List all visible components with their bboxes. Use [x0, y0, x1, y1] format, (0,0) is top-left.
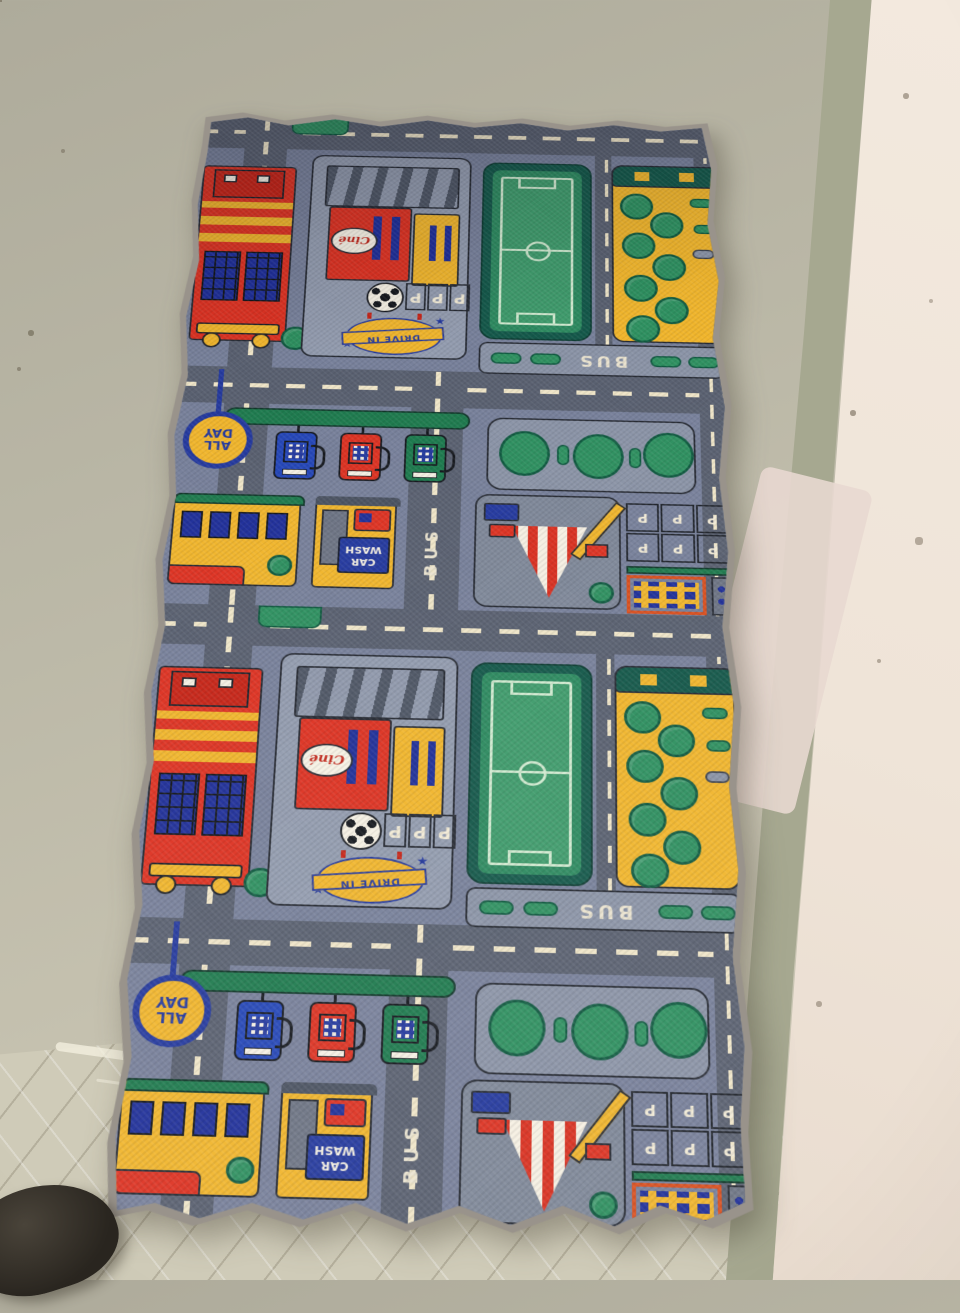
bus-lane-label: BUS [576, 352, 628, 370]
photo-scene: { "scene": { "description": "Children's … [0, 0, 960, 1280]
bush-icon [479, 900, 514, 915]
goal-box [510, 680, 553, 695]
sign-post [367, 313, 372, 319]
truck-icon [489, 524, 516, 538]
tram-window [180, 511, 204, 538]
bus-bay: BUS [478, 342, 725, 379]
fuel-pump-red [307, 1002, 357, 1064]
tree-icon [622, 232, 656, 259]
cinema-sign: Ciné [300, 743, 354, 777]
fire-station-roof [169, 671, 251, 708]
goal-box [518, 177, 556, 189]
parking-cell: P [661, 534, 695, 563]
fire-station-roof [212, 169, 285, 199]
car-wash-sign: CAR WASH [337, 537, 391, 574]
tree-icon [488, 999, 546, 1057]
dirt-specks [0, 0, 2, 2]
traffic-island [474, 982, 711, 1080]
truck-icon [484, 503, 520, 522]
parking-cell: P [696, 505, 730, 534]
pump-base [282, 469, 307, 475]
cinema-wing [390, 726, 446, 818]
construction-site [458, 1079, 626, 1227]
pump-panel [391, 1015, 420, 1043]
bench-icon [705, 771, 730, 783]
tram-building [167, 493, 302, 587]
park [614, 665, 740, 890]
car-wash-building: CAR WASH [311, 496, 398, 589]
parking-cell: P [670, 1092, 708, 1129]
bush-icon [658, 905, 693, 920]
truck-icon [476, 1117, 506, 1135]
factory-building [626, 566, 732, 616]
cinema-sign: Ciné [330, 227, 378, 254]
bush-icon [689, 199, 712, 209]
tree-icon [589, 1191, 618, 1219]
bush-icon [553, 1017, 567, 1043]
crane-cab [585, 1143, 611, 1161]
tree-icon [650, 212, 684, 239]
bush-icon [530, 353, 561, 365]
pump-base [347, 470, 372, 476]
pump-panel [283, 441, 309, 463]
tram-window [224, 1103, 250, 1138]
tram-window [237, 512, 260, 539]
tram-skirt [112, 1169, 201, 1197]
tram-window [208, 511, 231, 538]
fire-station-building [188, 165, 297, 342]
car-icon [323, 1098, 366, 1127]
tree-icon [573, 434, 624, 480]
fire-station-window [201, 774, 247, 837]
soccer-field [466, 662, 593, 887]
truck-icon [471, 1091, 511, 1115]
parking-lot: P P P P P P [626, 503, 731, 564]
tree-icon [626, 315, 660, 343]
wheel-icon [201, 332, 221, 348]
window-icon [224, 174, 238, 182]
pump-base [244, 1047, 272, 1055]
park-hedge [614, 665, 738, 695]
pump-base [390, 1051, 418, 1059]
road-park-side [595, 156, 613, 375]
factory-side [727, 1185, 751, 1235]
factory-windows [632, 1183, 723, 1234]
factory-building [632, 1171, 752, 1235]
park-hedge [611, 165, 722, 189]
fuel-pump-red [338, 433, 382, 482]
field-pitch [488, 680, 573, 867]
bush-icon [629, 448, 642, 469]
bush-icon [693, 225, 715, 235]
pump-panel [245, 1012, 274, 1040]
bush-icon [706, 740, 731, 752]
fuel-pump-blue [233, 1000, 284, 1062]
star-icon: ★ [416, 855, 428, 869]
parking-cell: P [383, 813, 407, 847]
fire-station-window [154, 773, 201, 836]
park [611, 165, 723, 344]
parking-cell: P [626, 503, 660, 532]
bush-icon [557, 445, 569, 466]
cinema-block: Ciné P P P ★ ★ DRIVE IN [265, 653, 459, 910]
car-wash-roof [315, 496, 400, 507]
bush-icon [490, 352, 521, 364]
soccer-field [479, 162, 592, 341]
pump-panel [348, 442, 374, 464]
traffic-island [486, 417, 697, 494]
tree-icon [620, 193, 654, 220]
grass-verge [291, 117, 349, 136]
fire-station-stripes [153, 710, 259, 763]
bench-icon [692, 250, 714, 260]
circus-tent-icon [497, 1120, 591, 1213]
cinema-roof [325, 165, 461, 209]
sign-post [417, 314, 421, 320]
pump-base [412, 472, 437, 478]
window-icon [257, 175, 271, 183]
tree-icon [650, 1001, 708, 1059]
car-wash-roof [281, 1082, 377, 1096]
soccer-ball-icon [366, 282, 405, 312]
bush-icon [634, 1021, 648, 1047]
fuel-pump-green [403, 434, 447, 483]
bush-icon [701, 906, 736, 921]
parking-cell: P [427, 284, 448, 311]
factory-side [711, 577, 732, 616]
fire-station-window [243, 252, 284, 302]
rug-pattern-tile: ↑ [158, 115, 733, 617]
tree-icon [655, 297, 690, 325]
parking-cell: P [626, 533, 660, 562]
parking-cell: P [710, 1093, 748, 1130]
parking-cell: P [433, 814, 457, 848]
cinema-wing [411, 213, 460, 287]
tree-icon [225, 1156, 255, 1184]
tree-icon [660, 777, 698, 811]
tree-icon [658, 724, 696, 758]
tram-skirt [167, 564, 246, 586]
tram-window [192, 1102, 219, 1137]
field-pitch [498, 177, 573, 326]
tree-icon [652, 254, 686, 281]
tram-roof [121, 1078, 269, 1095]
tree-icon [631, 853, 670, 888]
bush-icon [702, 707, 728, 719]
cinema-roof [294, 666, 446, 721]
tree-icon [626, 749, 664, 783]
construction-site [473, 494, 622, 610]
parking-cell: P [661, 504, 695, 533]
fire-station-building [140, 666, 264, 888]
fuel-pump-blue [273, 431, 318, 480]
rug-pattern-tile: ↑ [102, 603, 752, 1236]
tree-icon [628, 802, 666, 837]
cinema-building: Ciné [325, 206, 412, 281]
drive-in-sign: ★ ★ DRIVE IN [315, 856, 424, 905]
circus-tent-icon [507, 526, 590, 599]
tram-roof [174, 493, 306, 506]
fire-station-window [200, 251, 241, 301]
parking-cell: P [711, 1131, 750, 1168]
factory-windows [626, 575, 706, 615]
rug-surface: ↑ [102, 115, 752, 1236]
parking-cell: P [449, 284, 470, 311]
pump-base [317, 1049, 345, 1057]
car-wash-building: CAR WASH [275, 1082, 373, 1201]
drive-in-sign: ★ ★ DRIVE IN [345, 317, 442, 356]
goal-box [516, 312, 555, 325]
bus-lane-label: BUS [398, 1085, 431, 1185]
cinema-block: Ciné P P P ★ ★ DRIVE IN [300, 155, 472, 360]
bus-bay: BUS [465, 887, 742, 934]
tree-icon [643, 432, 695, 478]
cinema-building: Ciné [294, 717, 392, 812]
bus-lane-label: BUS [419, 498, 448, 576]
parking-lot: P P P P P P [631, 1091, 749, 1168]
crane-cab [585, 544, 608, 558]
tree-icon [624, 701, 661, 734]
grass-verge [257, 605, 322, 628]
tram-window [265, 513, 288, 540]
wheel-icon [154, 875, 177, 895]
car-wash-sign: CAR WASH [305, 1134, 366, 1182]
pump-panel [318, 1014, 347, 1042]
parking-cell: P [631, 1129, 669, 1166]
road-park-side [596, 654, 616, 929]
fire-station-stripes [199, 201, 294, 243]
parking-cell: P [405, 283, 426, 310]
sign-post [397, 852, 402, 860]
car-icon [353, 509, 391, 532]
factory-roof [632, 1171, 750, 1184]
star-icon: ★ [434, 316, 445, 327]
parking-cell: P [696, 534, 730, 563]
parking-cell: P [671, 1130, 709, 1167]
tree-icon [589, 582, 614, 604]
tram-building [112, 1078, 266, 1198]
rug-binding-edge: ↑ [93, 110, 760, 1244]
window-icon [218, 678, 233, 688]
parking-cell: P [408, 814, 432, 848]
bush-icon [688, 357, 719, 369]
tree-icon [499, 430, 550, 476]
bus-lane-label: BUS [575, 900, 633, 922]
parking-cell: P [631, 1091, 669, 1128]
play-rug: ↑ [93, 110, 760, 1244]
soccer-ball-icon [339, 812, 382, 850]
bush-icon [650, 356, 681, 368]
tree-icon [266, 554, 293, 576]
tree-icon [624, 275, 658, 303]
sign-post [341, 850, 346, 858]
fuel-pump-green [380, 1003, 430, 1065]
pump-panel [413, 444, 438, 466]
goal-box [508, 850, 552, 866]
tree-icon [663, 830, 702, 865]
window-icon [181, 677, 196, 687]
bush-icon [523, 901, 558, 916]
tree-icon [571, 1003, 629, 1061]
tram-window [128, 1100, 155, 1135]
tram-window [160, 1101, 187, 1136]
